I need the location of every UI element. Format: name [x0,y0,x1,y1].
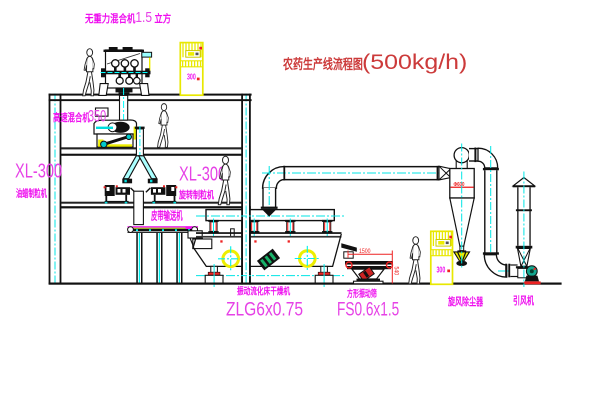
svg-text:540: 540 [392,267,399,276]
svg-text:350: 350 [88,107,106,126]
svg-text:引风机: 引风机 [513,293,534,306]
svg-text:XL-300: XL-300 [179,162,226,185]
svg-text:300: 300 [187,73,196,81]
svg-text:旋风除尘器: 旋风除尘器 [447,294,484,307]
svg-text:皮带输送机: 皮带输送机 [150,208,183,222]
svg-text:高速混合机: 高速混合机 [53,111,90,124]
svg-text:XL-300: XL-300 [15,159,62,182]
svg-text:(500kg/h): (500kg/h) [362,50,467,74]
svg-text:ZLG6x0.75: ZLG6x0.75 [226,298,303,320]
svg-text:FS0.6x1.5: FS0.6x1.5 [337,298,399,320]
svg-text:油蜡制粒机: 油蜡制粒机 [16,187,47,199]
svg-text:振动流化床干燥机: 振动流化床干燥机 [237,285,291,297]
svg-text:旋转制粒机: 旋转制粒机 [178,188,214,201]
svg-text:300: 300 [437,266,446,274]
svg-text:农药生产线流程图: 农药生产线流程图 [282,56,363,72]
